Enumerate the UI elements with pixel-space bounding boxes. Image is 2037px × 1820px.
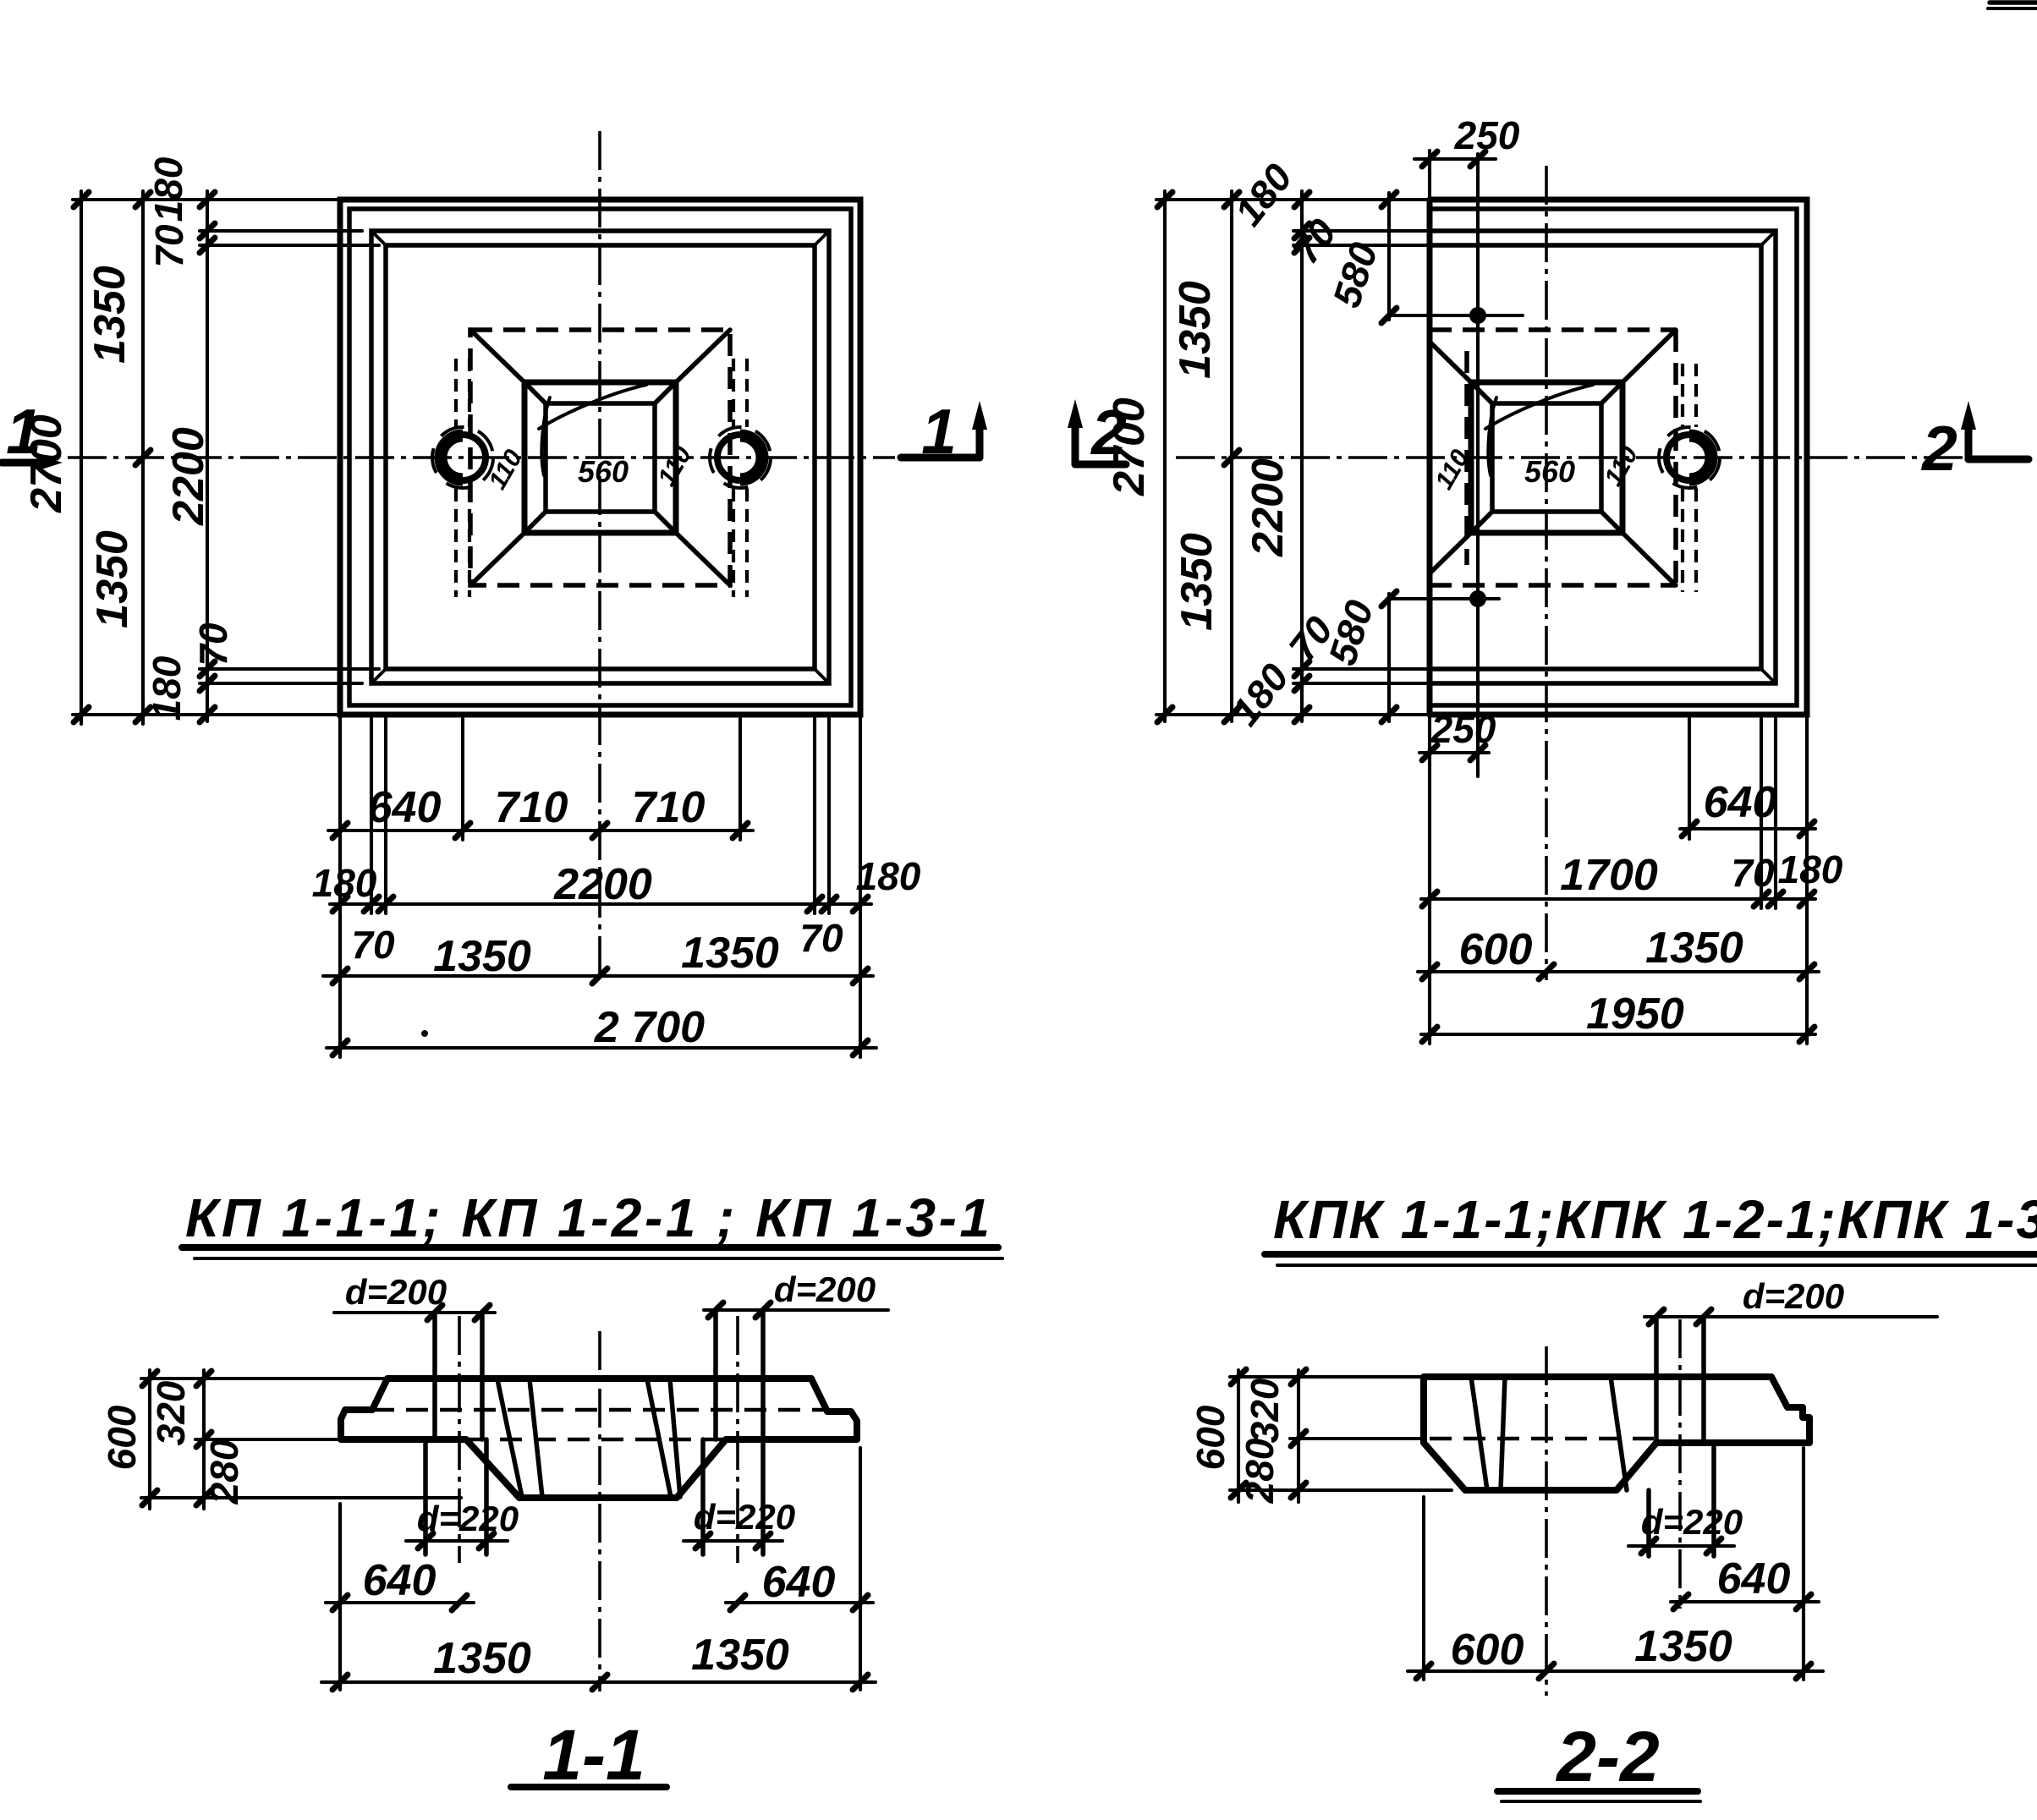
svg-text:560: 560	[578, 454, 629, 489]
svg-text:d=220: d=220	[1641, 1502, 1743, 1542]
svg-text:2700: 2700	[1105, 397, 1154, 496]
svg-text:180: 180	[146, 156, 190, 222]
svg-text:d=200: d=200	[774, 1269, 876, 1309]
svg-text:d=220: d=220	[694, 1497, 795, 1537]
svg-text:d=200: d=200	[1743, 1276, 1844, 1316]
svg-text:1350: 1350	[681, 929, 779, 978]
svg-text:70: 70	[147, 224, 191, 268]
svg-text:640: 640	[368, 783, 442, 832]
svg-text:2200: 2200	[1244, 458, 1293, 557]
svg-text:2: 2	[1920, 413, 1957, 484]
svg-text:180: 180	[145, 655, 189, 721]
svg-text:640: 640	[762, 1558, 836, 1607]
svg-text:70: 70	[351, 923, 395, 967]
svg-text:1350: 1350	[691, 1631, 789, 1680]
svg-text:1350: 1350	[1634, 1622, 1732, 1671]
svg-text:1: 1	[921, 396, 957, 467]
svg-text:2200: 2200	[553, 860, 652, 909]
svg-text:320: 320	[1243, 1378, 1287, 1443]
svg-text:710: 710	[495, 783, 568, 832]
svg-text:1350: 1350	[433, 932, 531, 981]
svg-text:280: 280	[1238, 1438, 1282, 1504]
svg-text:180: 180	[856, 854, 921, 898]
svg-text:2700: 2700	[22, 414, 71, 513]
svg-text:1-1: 1-1	[542, 1715, 645, 1795]
svg-text:600: 600	[1459, 925, 1533, 974]
svg-text:640: 640	[1717, 1554, 1791, 1603]
svg-text:КП 1-1-1; КП 1-2-1 ; КП 1-3-1: КП 1-1-1; КП 1-2-1 ; КП 1-3-1	[185, 1187, 990, 1248]
svg-text:1950: 1950	[1586, 989, 1684, 1039]
svg-text:70: 70	[799, 916, 843, 960]
svg-text:710: 710	[632, 783, 706, 832]
svg-text:320: 320	[149, 1380, 193, 1445]
svg-text:640: 640	[1704, 778, 1777, 827]
svg-text:70: 70	[191, 622, 235, 666]
svg-text:2-2: 2-2	[1555, 1717, 1659, 1796]
svg-text:1350: 1350	[1645, 924, 1743, 973]
svg-text:1350: 1350	[85, 266, 135, 364]
svg-text:640: 640	[363, 1556, 436, 1605]
svg-text:600: 600	[100, 1405, 144, 1470]
svg-text:280: 280	[202, 1439, 246, 1505]
svg-text:1700: 1700	[1560, 851, 1658, 900]
svg-text:560: 560	[1524, 454, 1575, 489]
svg-text:1350: 1350	[1171, 281, 1220, 379]
svg-text:600: 600	[1451, 1625, 1524, 1675]
svg-text:250: 250	[1454, 113, 1520, 157]
svg-text:КПК 1-1-1;КПК 1-2-1;КПК 1-3-1: КПК 1-1-1;КПК 1-2-1;КПК 1-3-1	[1273, 1189, 2037, 1250]
svg-text:180: 180	[1778, 847, 1843, 891]
svg-text:d=200: d=200	[345, 1272, 447, 1312]
svg-text:600: 600	[1189, 1405, 1233, 1470]
svg-text:180: 180	[312, 861, 377, 905]
svg-text:2200: 2200	[164, 427, 213, 526]
svg-text:1350: 1350	[1172, 533, 1222, 631]
svg-text:d=220: d=220	[417, 1499, 519, 1538]
svg-text:1350: 1350	[433, 1634, 531, 1683]
svg-text:1350: 1350	[88, 530, 137, 628]
svg-text:2 700: 2 700	[594, 1003, 705, 1052]
svg-text:70: 70	[1731, 851, 1775, 895]
